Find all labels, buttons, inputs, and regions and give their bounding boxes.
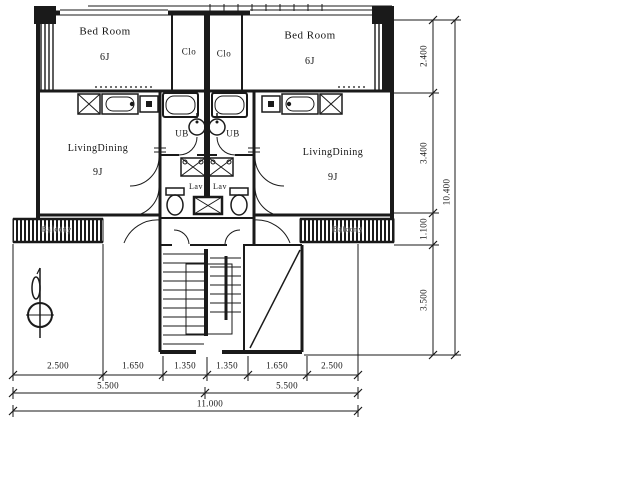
toilet-right-icon <box>230 188 248 215</box>
dim-bottom-segment-1: 2.500 <box>47 362 69 371</box>
kitchen-left-icons <box>78 94 158 114</box>
room-label-lav-left: Lav <box>189 183 203 191</box>
room-label-balcony-left: Balcony <box>42 227 72 234</box>
room-size-bedroom-right: 6J <box>305 57 315 67</box>
room-label-bedroom-right: Bed Room <box>284 31 335 42</box>
kitchen-right-icons <box>262 94 342 114</box>
dim-bottom-segment-5: 1.650 <box>266 362 288 371</box>
room-label-bath-left: UB <box>175 130 189 139</box>
dim-bottom-subtotal-2: 5.500 <box>276 382 298 391</box>
floor-plan-drawing <box>0 0 640 479</box>
pipe-space-icon <box>194 197 222 214</box>
dim-right-segment-3: 1.100 <box>420 218 429 240</box>
dim-bottom-segment-3: 1.350 <box>174 362 196 371</box>
dim-bottom-subtotal-1: 5.500 <box>97 382 119 391</box>
toilet-left-icon <box>166 188 184 215</box>
room-size-bedroom-left: 6J <box>100 53 110 63</box>
dim-right-segment-1: 2.400 <box>420 45 429 67</box>
room-label-living-left: LivingDining <box>68 144 128 154</box>
dim-bottom-total: 11.000 <box>197 400 223 409</box>
washer-pan-left-icon <box>181 158 205 176</box>
room-label-bath-right: UB <box>226 130 240 139</box>
stairs <box>163 249 241 344</box>
dim-right-segment-4: 3.500 <box>420 289 429 311</box>
washer-pan-right-icon <box>209 158 233 176</box>
bathtub-left-icon <box>163 93 198 117</box>
room-label-bedroom-left: Bed Room <box>79 27 130 38</box>
room-label-balcony-right: Balcony <box>333 227 363 234</box>
dim-bottom-segment-2: 1.650 <box>122 362 144 371</box>
room-label-lav-right: Lav <box>213 183 227 191</box>
dim-bottom-segment-4: 1.350 <box>216 362 238 371</box>
void-diagonal <box>250 250 300 348</box>
room-label-living-right: LivingDining <box>303 148 363 158</box>
stair-hall-walls <box>160 245 302 356</box>
room-label-closet-right: Clo <box>217 50 232 59</box>
floor-plan-sheet: Bed Room 6J Bed Room 6J Clo Clo LivingDi… <box>0 0 640 479</box>
north-arrow-icon <box>26 268 54 338</box>
room-label-closet-left: Clo <box>182 48 197 57</box>
entry-door-arcs <box>124 220 290 244</box>
room-size-living-right: 9J <box>328 173 338 183</box>
dim-bottom-segment-6: 2.500 <box>321 362 343 371</box>
room-size-living-left: 9J <box>93 168 103 178</box>
dim-right-total: 10.400 <box>443 179 452 206</box>
dim-right-segment-2: 3.400 <box>420 142 429 164</box>
